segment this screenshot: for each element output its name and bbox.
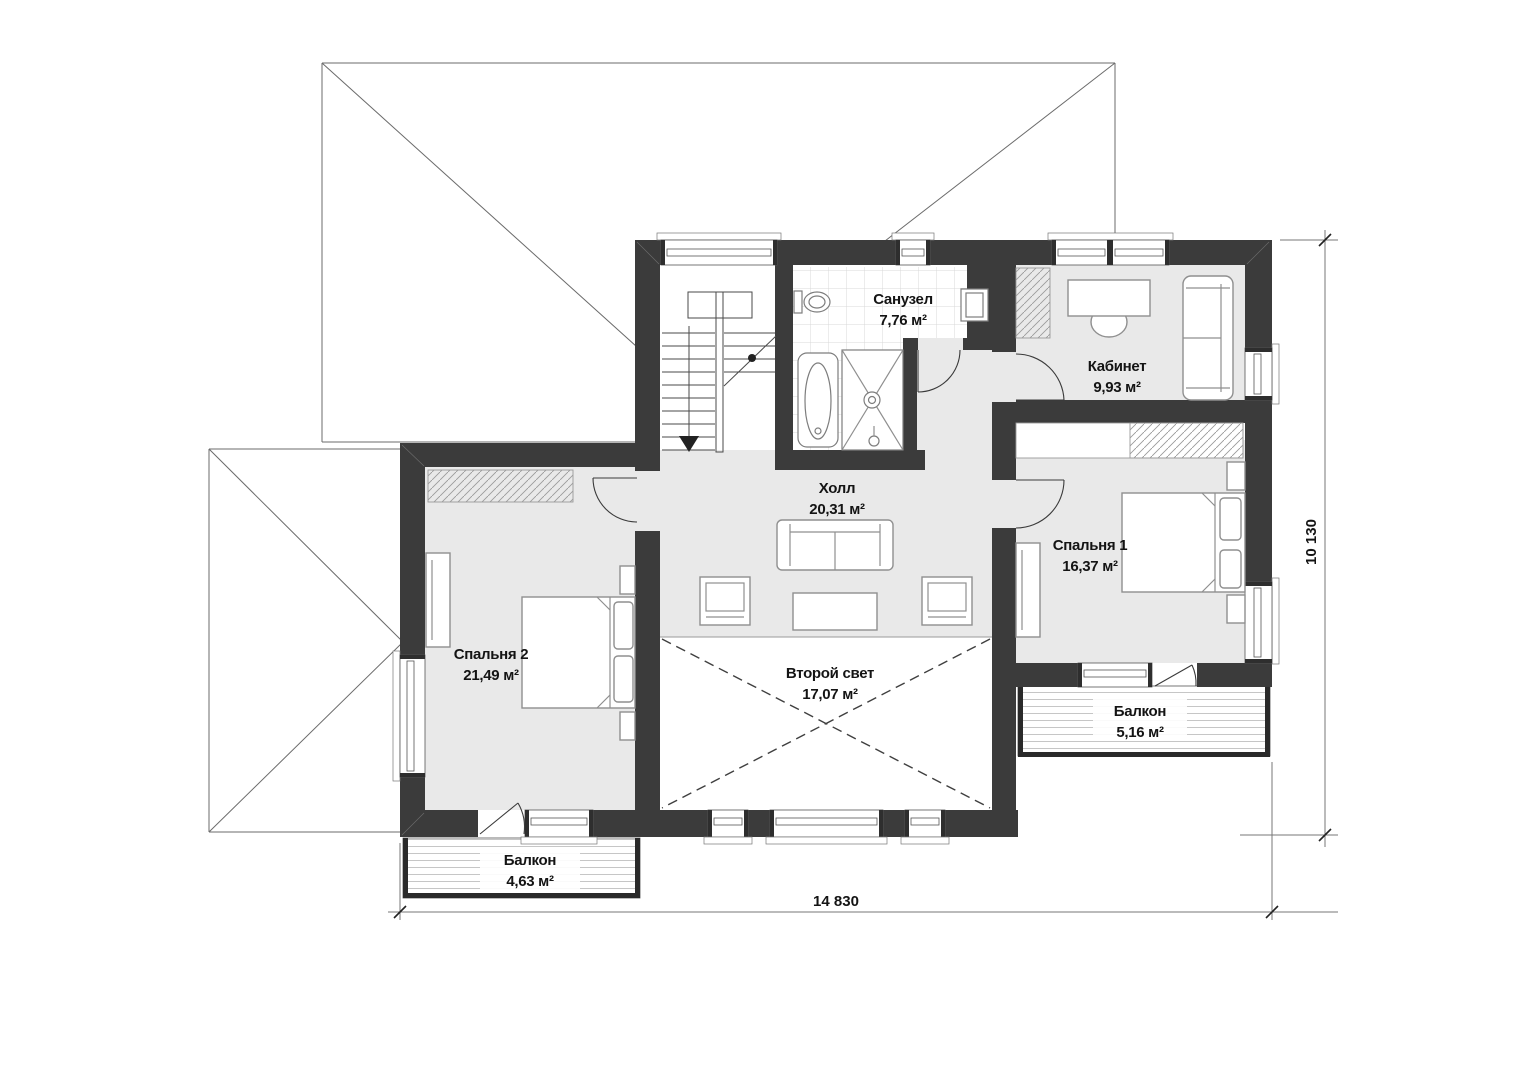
second-light-void xyxy=(660,637,992,810)
bedroom2-wardrobe xyxy=(428,470,573,502)
hall-corridor-floor xyxy=(917,338,992,453)
armchair-right xyxy=(922,577,972,625)
window-stairs xyxy=(657,233,781,265)
shower xyxy=(842,350,903,450)
stairs xyxy=(662,292,776,452)
dimension-width-label: 14 830 xyxy=(813,893,859,910)
nightstand xyxy=(1227,595,1245,623)
svg-text:17,07 м²: 17,07 м² xyxy=(802,686,858,703)
office-wardrobe xyxy=(1016,268,1050,338)
dimension-height-label: 10 130 xyxy=(1303,519,1320,565)
desk xyxy=(1068,280,1150,316)
office-sofa xyxy=(1183,276,1233,400)
bathtub xyxy=(798,353,838,447)
bedroom2-bed xyxy=(522,597,635,708)
svg-text:Балкон: Балкон xyxy=(504,852,557,869)
window-office-right xyxy=(1245,344,1279,404)
sofa xyxy=(777,520,893,570)
window-bedroom2-left xyxy=(393,651,425,781)
door-bedroom1-balcony xyxy=(1155,665,1196,686)
floor-plan-page: 14 830 10 130 Санузел 7,76 м² Кабинет 9,… xyxy=(0,0,1528,1080)
window-bedroom2-bottom xyxy=(521,810,597,844)
windows-second-light xyxy=(704,810,949,844)
stairs-node-dot xyxy=(748,354,756,362)
floor-plan-svg: 14 830 10 130 Санузел 7,76 м² Кабинет 9,… xyxy=(0,0,1528,1080)
svg-text:4,63 м²: 4,63 м² xyxy=(506,873,554,890)
svg-text:Спальня 1: Спальня 1 xyxy=(1053,537,1128,554)
balcony-right xyxy=(1018,686,1270,756)
svg-text:7,76 м²: 7,76 м² xyxy=(879,312,927,329)
coffee-table xyxy=(793,593,877,630)
svg-text:Санузел: Санузел xyxy=(873,291,933,308)
svg-text:9,93 м²: 9,93 м² xyxy=(1093,379,1141,396)
bedroom1-dresser xyxy=(1016,543,1040,637)
svg-text:Балкон: Балкон xyxy=(1114,703,1167,720)
svg-text:5,16 м²: 5,16 м² xyxy=(1116,724,1164,741)
svg-text:Кабинет: Кабинет xyxy=(1088,358,1147,375)
svg-text:21,49 м²: 21,49 м² xyxy=(463,667,519,684)
window-bedroom1-balcony xyxy=(1078,663,1152,687)
svg-text:Холл: Холл xyxy=(819,480,855,497)
toilet xyxy=(794,291,830,313)
svg-text:Спальня 2: Спальня 2 xyxy=(454,646,529,663)
svg-text:Второй свет: Второй свет xyxy=(786,665,874,682)
window-office-top xyxy=(1048,233,1173,265)
svg-text:20,31 м²: 20,31 м² xyxy=(809,501,865,518)
bedroom1-wardrobe xyxy=(1016,423,1243,458)
nightstand xyxy=(620,712,635,740)
bedroom1-bed xyxy=(1122,493,1245,592)
nightstand xyxy=(1227,462,1245,490)
armchair-left xyxy=(700,577,750,625)
window-bedroom1-right xyxy=(1245,578,1279,664)
washbasin xyxy=(961,289,988,321)
window-bathroom xyxy=(892,233,934,265)
roof-outline-left xyxy=(209,449,403,832)
nightstand xyxy=(620,566,635,594)
bedroom2-dresser xyxy=(426,553,450,647)
svg-text:16,37 м²: 16,37 м² xyxy=(1062,558,1118,575)
